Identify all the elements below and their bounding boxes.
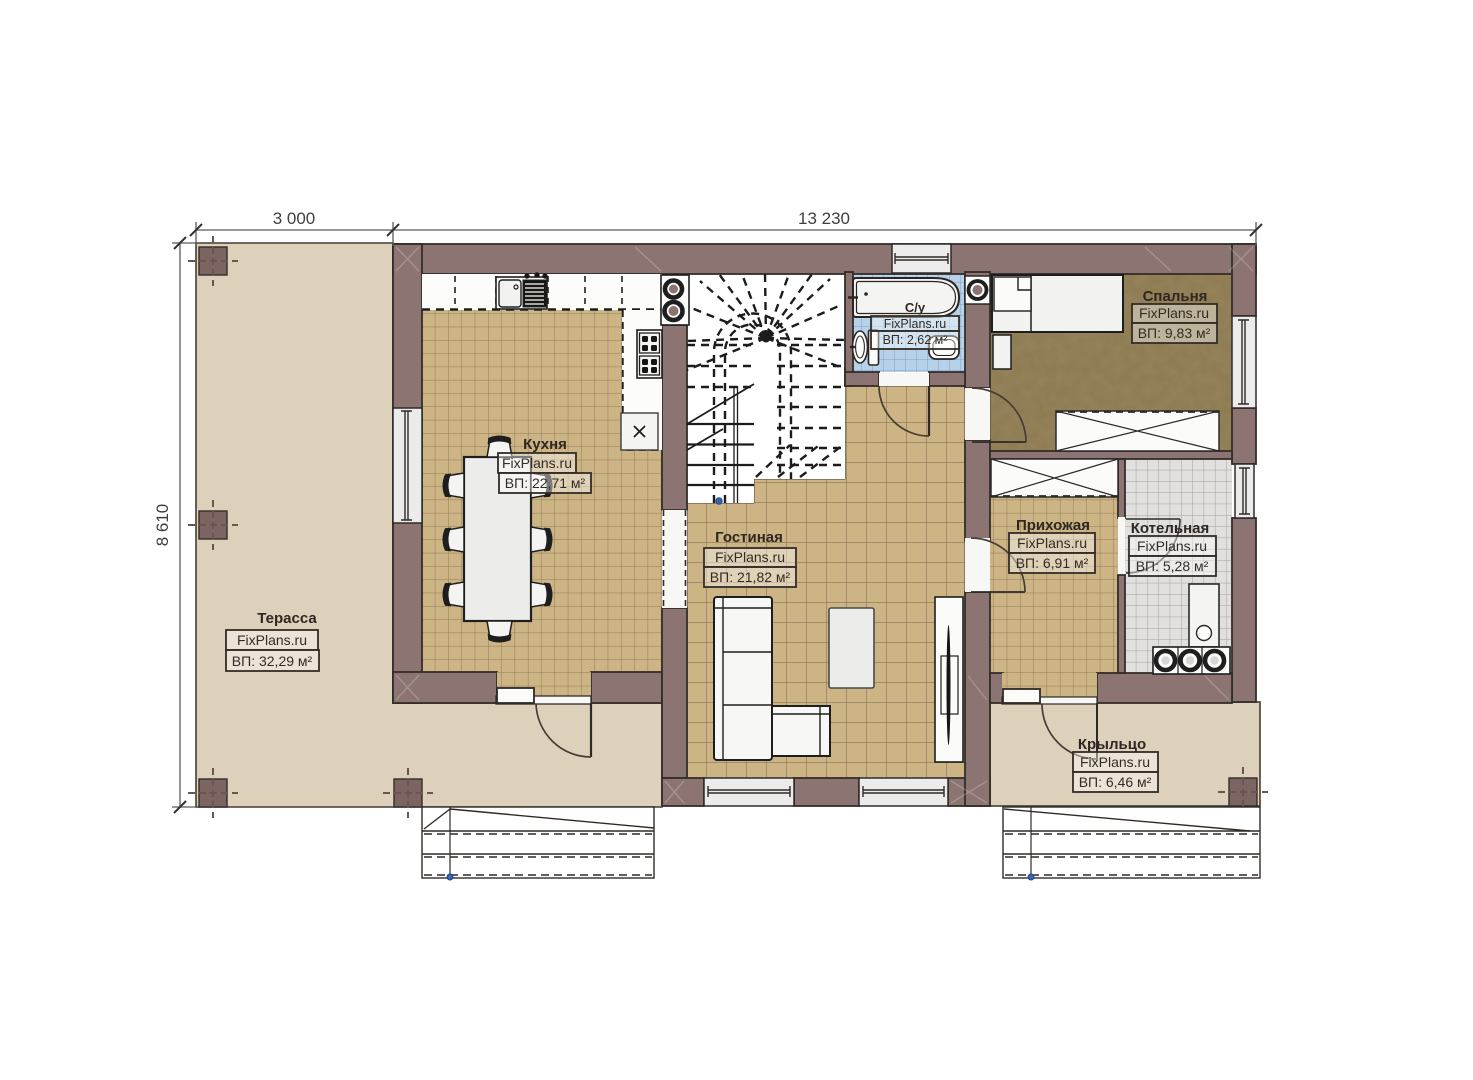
svg-text:ВП: 32,29 м²: ВП: 32,29 м² [232,653,313,669]
svg-text:ВП: 5,28 м²: ВП: 5,28 м² [1136,558,1209,574]
svg-text:ВП: 6,46 м²: ВП: 6,46 м² [1079,774,1152,790]
svg-text:Кухня: Кухня [523,436,567,453]
svg-text:FixPlans.ru: FixPlans.ru [884,317,947,331]
svg-text:ВП: 22,71 м²: ВП: 22,71 м² [505,475,586,491]
svg-text:Прихожая: Прихожая [1016,517,1090,534]
svg-text:Терасса: Терасса [257,610,317,627]
svg-text:FixPlans.ru: FixPlans.ru [1137,538,1207,554]
svg-text:FixPlans.ru: FixPlans.ru [715,549,785,565]
svg-text:Гостиная: Гостиная [715,529,783,546]
svg-text:ВП: 21,82 м²: ВП: 21,82 м² [710,569,791,585]
svg-text:Крыльцо: Крыльцо [1078,736,1146,753]
svg-text:Котельная: Котельная [1131,520,1210,537]
svg-text:С/у: С/у [905,300,926,315]
svg-text:FixPlans.ru: FixPlans.ru [1139,305,1209,321]
svg-text:ВП: 2,62 м²: ВП: 2,62 м² [883,333,948,347]
svg-text:8 610: 8 610 [153,504,172,547]
svg-text:13 230: 13 230 [798,209,850,228]
svg-text:FixPlans.ru: FixPlans.ru [502,455,572,471]
svg-text:FixPlans.ru: FixPlans.ru [237,632,307,648]
svg-text:ВП: 6,91 м²: ВП: 6,91 м² [1016,555,1089,571]
svg-text:Спальня: Спальня [1143,288,1208,305]
svg-text:FixPlans.ru: FixPlans.ru [1017,535,1087,551]
svg-text:FixPlans.ru: FixPlans.ru [1080,754,1150,770]
svg-text:3 000: 3 000 [273,209,316,228]
svg-text:ВП: 9,83 м²: ВП: 9,83 м² [1138,325,1211,341]
